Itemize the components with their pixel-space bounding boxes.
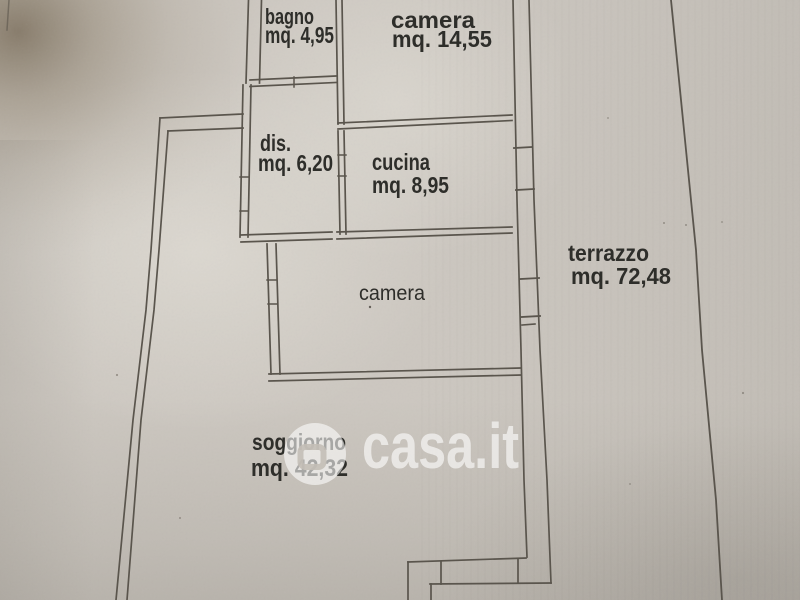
svg-text:casa.it: casa.it (362, 410, 519, 482)
svg-text:mq. 14,55: mq. 14,55 (392, 26, 492, 52)
svg-text:mq. 8,95: mq. 8,95 (372, 172, 449, 198)
svg-text:mq. 6,20: mq. 6,20 (258, 150, 333, 176)
svg-text:camera: camera (359, 282, 425, 305)
svg-text:mq. 72,48: mq. 72,48 (571, 263, 671, 289)
svg-text:mq. 4,95: mq. 4,95 (265, 22, 334, 48)
